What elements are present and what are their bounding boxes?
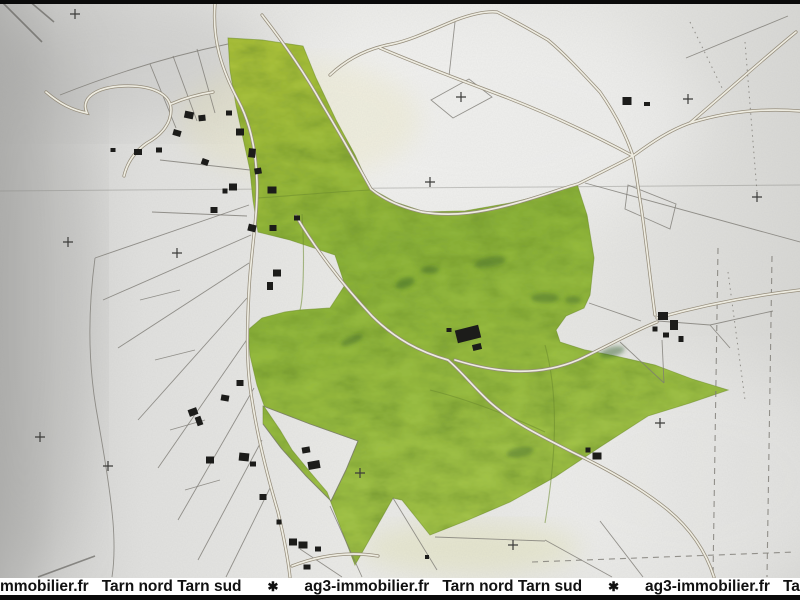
watermark-brand-partial: mmobilier.fr — [0, 578, 89, 595]
watermark-bar: mmobilier.fr Tarn nord Tarn sud ✱ ag3-im… — [0, 578, 800, 600]
watermark-brand: ag3-immobilier.fr — [304, 578, 429, 595]
photo-of-cadastral-map: mmobilier.fr Tarn nord Tarn sud ✱ ag3-im… — [0, 0, 800, 600]
watermark-region-label-partial: Tarn nord Tarn — [783, 578, 800, 595]
asterisk-icon: ✱ — [268, 578, 279, 595]
map-drawing — [0, 0, 800, 578]
bottom-black-bar — [0, 595, 800, 600]
asterisk-icon: ✱ — [608, 578, 619, 595]
cadastral-map-image — [0, 0, 800, 578]
top-black-bar — [0, 0, 800, 4]
watermark-region-label: Tarn nord Tarn sud — [442, 578, 582, 595]
watermark-text-strip: mmobilier.fr Tarn nord Tarn sud ✱ ag3-im… — [0, 578, 800, 595]
watermark-region-label: Tarn nord Tarn sud — [102, 578, 242, 595]
watermark-brand: ag3-immobilier.fr — [645, 578, 770, 595]
